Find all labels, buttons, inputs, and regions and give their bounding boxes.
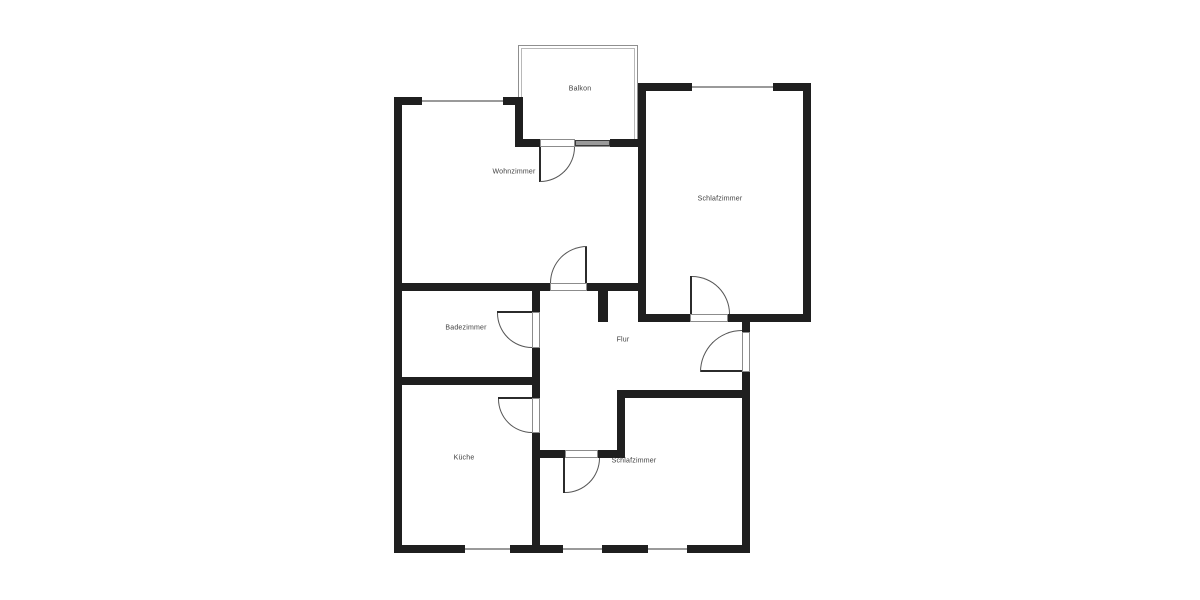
- wall-segment: [510, 545, 563, 553]
- wall-segment: [394, 283, 550, 291]
- wall-segment: [728, 314, 811, 322]
- door-opening: [565, 450, 598, 458]
- door-opening: [742, 332, 750, 372]
- door-swing-arc: [497, 313, 532, 348]
- wall-segment: [532, 348, 540, 398]
- room-label-flur-4: Flur: [617, 337, 630, 344]
- door-opening: [532, 398, 540, 433]
- wall-segment: [598, 291, 608, 322]
- door-opening: [540, 139, 575, 147]
- door-swing-arc: [540, 147, 575, 182]
- floor-plan: BalkonWohnzimmerSchlafzimmerBadezimmerFl…: [0, 0, 1200, 600]
- door-swing-arc: [700, 330, 742, 372]
- wall-segment: [515, 139, 540, 147]
- room-label-kueche-5: Küche: [454, 455, 475, 462]
- room-label-badezimmer-3: Badezimmer: [445, 325, 486, 332]
- wall-segment: [742, 314, 750, 332]
- window: [422, 100, 503, 102]
- door-opening: [550, 283, 587, 291]
- wall-segment: [394, 545, 465, 553]
- balcony-outline: [521, 48, 635, 144]
- door-swing-arc: [565, 458, 600, 493]
- wall-segment: [638, 314, 690, 322]
- door-swing-arc: [692, 276, 730, 314]
- door-swing-arc: [498, 399, 532, 433]
- wall-segment: [742, 372, 750, 553]
- room-label-schlafzimmer-6: Schlafzimmer: [612, 458, 657, 465]
- window: [648, 548, 687, 550]
- door-swing-arc: [550, 246, 587, 283]
- door-opening: [690, 314, 728, 322]
- window: [563, 548, 602, 550]
- window: [465, 548, 510, 550]
- wall-segment: [617, 390, 625, 458]
- wall-segment: [602, 545, 648, 553]
- wall-segment: [532, 291, 540, 312]
- room-label-wohnzimmer-1: Wohnzimmer: [492, 169, 535, 176]
- balcony-door-sill: [575, 140, 610, 146]
- wall-segment: [394, 377, 540, 385]
- window: [692, 86, 773, 88]
- room-label-schlafzimmer-2: Schlafzimmer: [698, 196, 743, 203]
- wall-segment: [394, 97, 402, 553]
- wall-segment: [617, 390, 750, 398]
- wall-segment: [687, 545, 750, 553]
- door-opening: [532, 312, 540, 348]
- wall-segment: [803, 83, 811, 322]
- wall-segment: [638, 83, 692, 91]
- wall-segment: [394, 97, 422, 105]
- wall-segment: [587, 283, 646, 291]
- wall-segment: [538, 450, 565, 458]
- room-label-balkon-0: Balkon: [569, 86, 592, 93]
